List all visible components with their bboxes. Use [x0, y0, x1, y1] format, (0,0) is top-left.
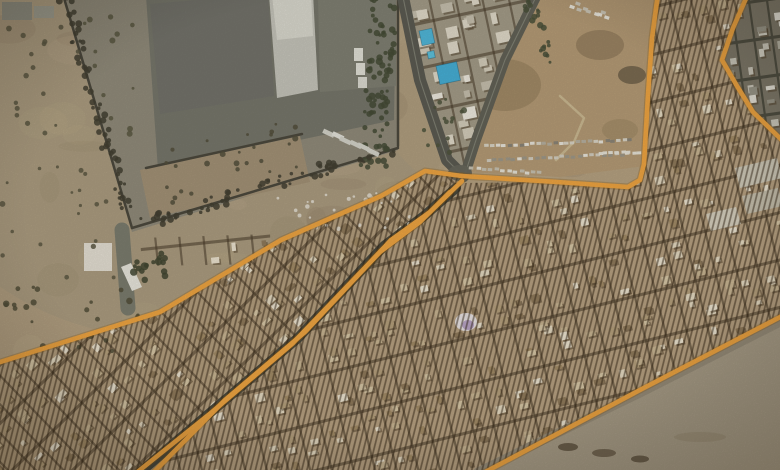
screenshot-root	[0, 0, 780, 470]
vignette-overlay	[0, 0, 780, 470]
satellite-image	[0, 0, 780, 470]
